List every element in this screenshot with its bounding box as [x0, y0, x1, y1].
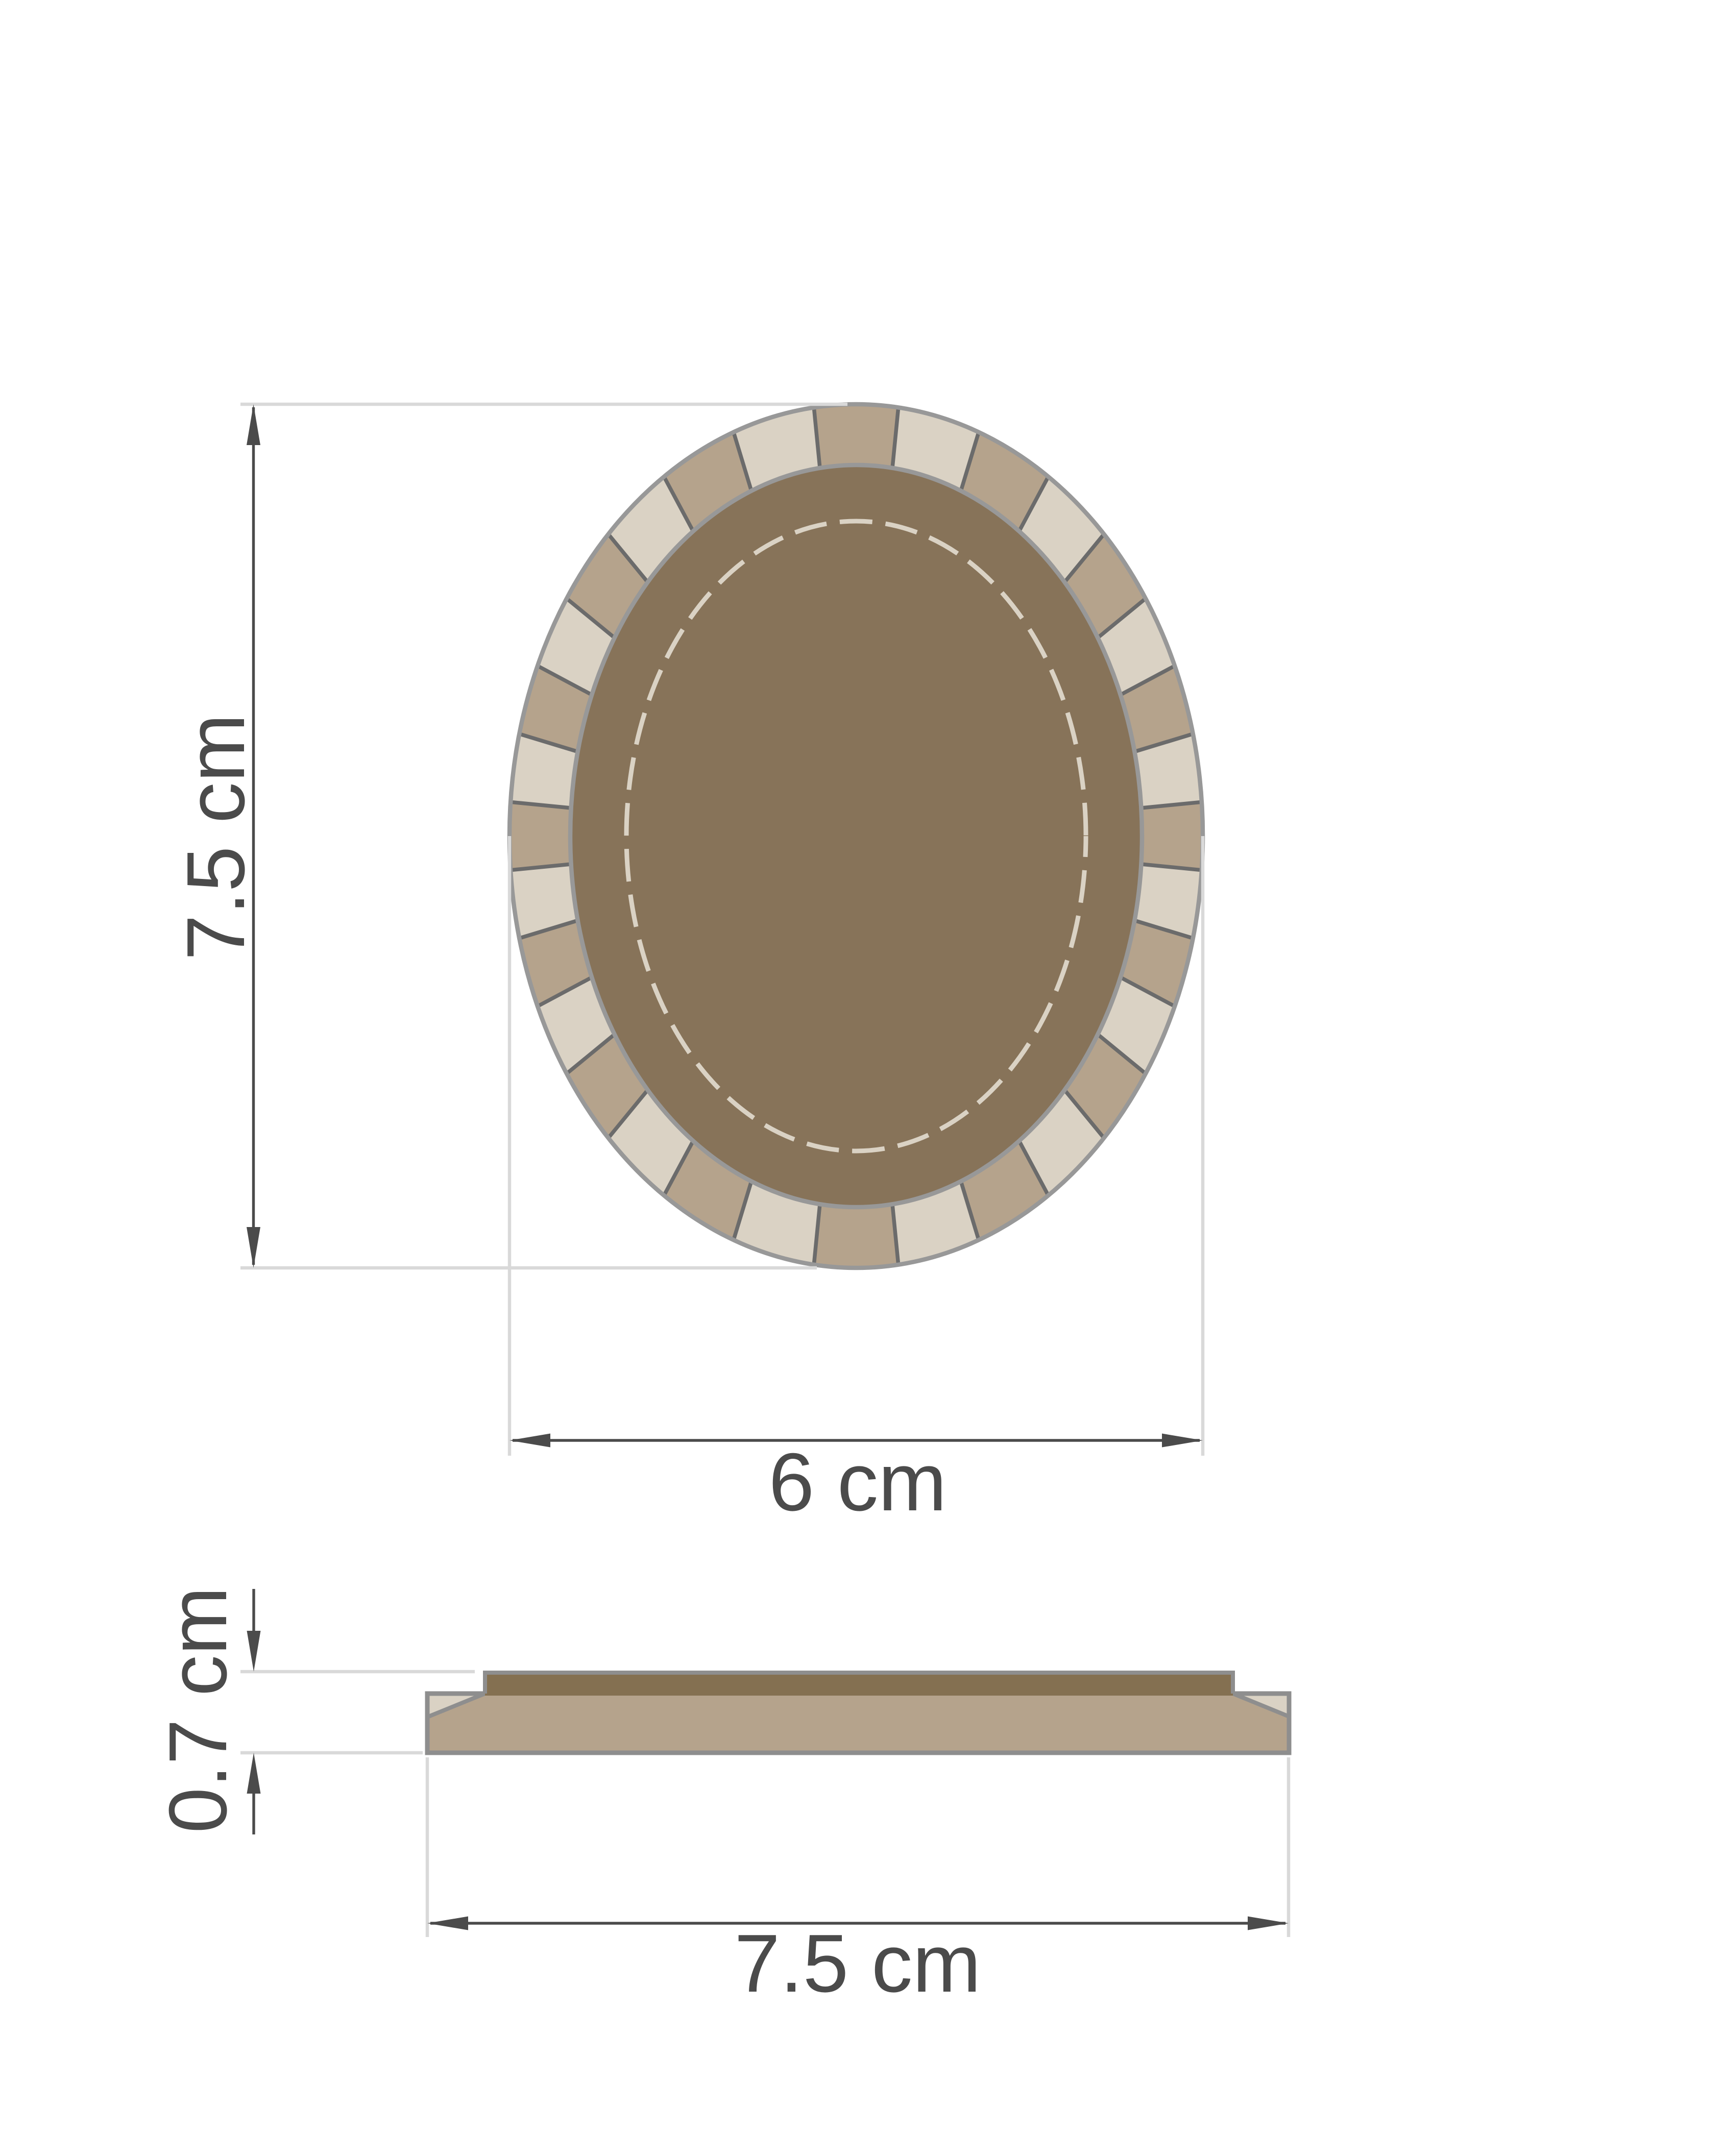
svg-text:7.5 cm: 7.5 cm — [734, 1918, 981, 2010]
svg-text:6 cm: 6 cm — [769, 1436, 947, 1528]
svg-text:7.5 cm: 7.5 cm — [170, 714, 262, 960]
svg-text:0.7 cm: 0.7 cm — [152, 1586, 244, 1833]
